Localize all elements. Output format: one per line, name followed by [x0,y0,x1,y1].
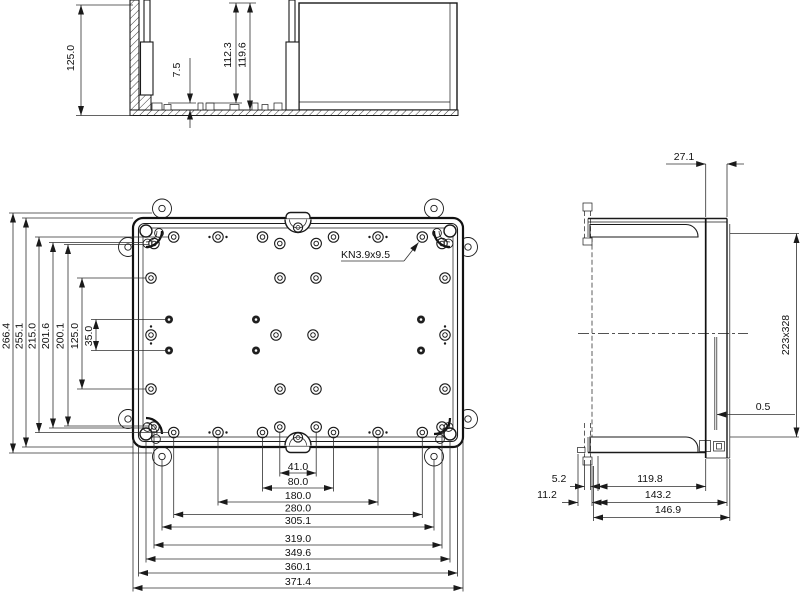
dim-label-223x328: 223x328 [780,315,792,355]
top-flange [590,225,698,238]
dim-label-146-9: 146.9 [655,504,681,516]
dim-label-125-0: 125.0 [69,323,81,349]
dim-label-319-0: 319.0 [285,533,311,545]
dim-label-255-1: 255.1 [14,323,26,349]
back-wall [299,3,457,110]
dim-label-section-height: 125.0 [65,45,77,71]
dim-label-5-2: 5.2 [552,473,567,485]
corner-block [139,95,151,110]
latch [714,442,725,452]
dim-label-standoff: 7.5 [171,63,183,78]
dim-label-inner-depth: 119.6 [237,42,249,68]
dim-label-depth-boss: 112.3 [222,42,234,68]
enclosure-body [133,218,463,447]
floor-section [130,110,458,116]
dim-label-11-2: 11.2 [537,489,557,501]
dim-label-41-0: 41.0 [288,461,309,473]
dim-label-371-4: 371.4 [285,576,311,588]
lug [425,199,444,218]
dim-label-305-1: 305.1 [285,515,311,527]
dim-label-349-6: 349.6 [285,547,311,559]
dim-label-266-4: 266.4 [1,323,13,349]
lug [153,199,172,218]
bottom-flange [590,437,698,453]
dim-label-27-1: 27.1 [674,151,695,163]
post [144,0,150,42]
post-base [286,42,299,110]
dim-label-0-5: 0.5 [756,401,771,413]
kn-label: KN3.9x9.5 [341,249,390,261]
technical-drawing: 125.0 7.5 112.3 119.6 [0,0,800,595]
dim-label-215-0: 215.0 [27,323,39,349]
dim-label-360-1: 360.1 [285,561,311,573]
dim-label-280-0: 280.0 [285,503,311,515]
dim-label-143-2: 143.2 [645,489,671,501]
dim-label-80-0: 80.0 [288,476,309,488]
dim-label-35-0: 35.0 [83,326,95,347]
post [289,0,295,42]
dim-label-200-1: 200.1 [55,323,67,349]
side-wall-section [130,0,139,110]
dim-label-119-8: 119.8 [637,473,663,485]
drawing-canvas: 125.0 7.5 112.3 119.6 [0,0,800,595]
dim-label-180-0: 180.0 [285,490,311,502]
dim-label-201-6: 201.6 [40,323,52,349]
post-base [141,42,154,95]
